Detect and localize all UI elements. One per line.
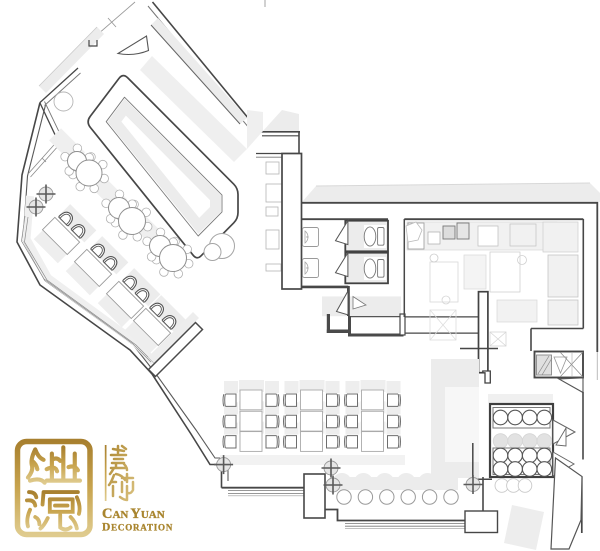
- svg-text:CANYUAN: CANYUAN: [102, 506, 165, 522]
- svg-text:DECORATION: DECORATION: [102, 522, 173, 534]
